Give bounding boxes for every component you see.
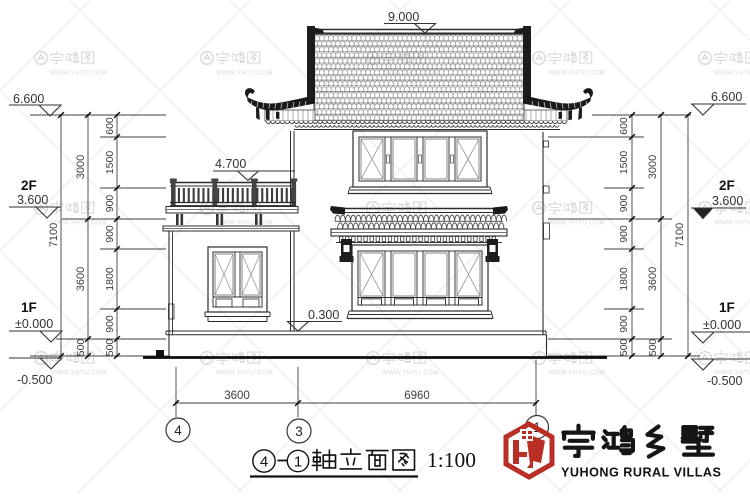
svg-text:900: 900 <box>104 195 116 213</box>
svg-text:1800: 1800 <box>618 267 630 291</box>
svg-text:3600: 3600 <box>75 267 87 291</box>
svg-text:7100: 7100 <box>48 223 60 247</box>
svg-text:600: 600 <box>618 117 630 135</box>
svg-text:1F: 1F <box>719 300 735 315</box>
svg-text:500: 500 <box>104 339 116 357</box>
svg-text:4: 4 <box>174 423 182 438</box>
svg-text:3: 3 <box>295 424 303 439</box>
svg-text:6960: 6960 <box>404 390 430 402</box>
svg-text:3000: 3000 <box>647 155 659 179</box>
svg-text:2F: 2F <box>21 178 37 193</box>
svg-text:1:100: 1:100 <box>427 448 476 472</box>
svg-text:900: 900 <box>104 225 116 243</box>
svg-text:7100: 7100 <box>674 223 686 247</box>
svg-text:-0.500: -0.500 <box>707 374 742 388</box>
svg-text:±0.000: ±0.000 <box>15 317 53 331</box>
svg-text:900: 900 <box>104 315 116 333</box>
svg-text:6.600: 6.600 <box>13 92 44 106</box>
svg-text:3600: 3600 <box>647 267 659 291</box>
svg-text:600: 600 <box>104 117 116 135</box>
svg-text:1500: 1500 <box>618 151 630 175</box>
svg-text:0.300: 0.300 <box>308 308 339 322</box>
svg-text:2F: 2F <box>719 178 735 193</box>
svg-text:1800: 1800 <box>104 267 116 291</box>
svg-text:YUHONG RURAL VILLAS: YUHONG RURAL VILLAS <box>561 466 721 480</box>
svg-text:900: 900 <box>618 195 630 213</box>
svg-text:9.000: 9.000 <box>388 10 419 24</box>
svg-text:1: 1 <box>294 454 302 471</box>
svg-text:1F: 1F <box>21 300 37 315</box>
svg-text:-0.500: -0.500 <box>17 373 52 387</box>
svg-text:900: 900 <box>618 315 630 333</box>
svg-text:4: 4 <box>260 454 268 471</box>
svg-text:3000: 3000 <box>75 155 87 179</box>
svg-text:900: 900 <box>618 225 630 243</box>
svg-text:4.700: 4.700 <box>215 157 246 171</box>
svg-text:±0.000: ±0.000 <box>703 318 741 332</box>
svg-text:3600: 3600 <box>224 390 250 402</box>
svg-text:6.600: 6.600 <box>711 90 742 104</box>
svg-text:3.600: 3.600 <box>17 193 48 207</box>
svg-text:500: 500 <box>75 339 87 357</box>
svg-text:3.600: 3.600 <box>712 194 743 208</box>
svg-text:500: 500 <box>647 339 659 357</box>
svg-text:1500: 1500 <box>104 151 116 175</box>
svg-text:500: 500 <box>618 339 630 357</box>
